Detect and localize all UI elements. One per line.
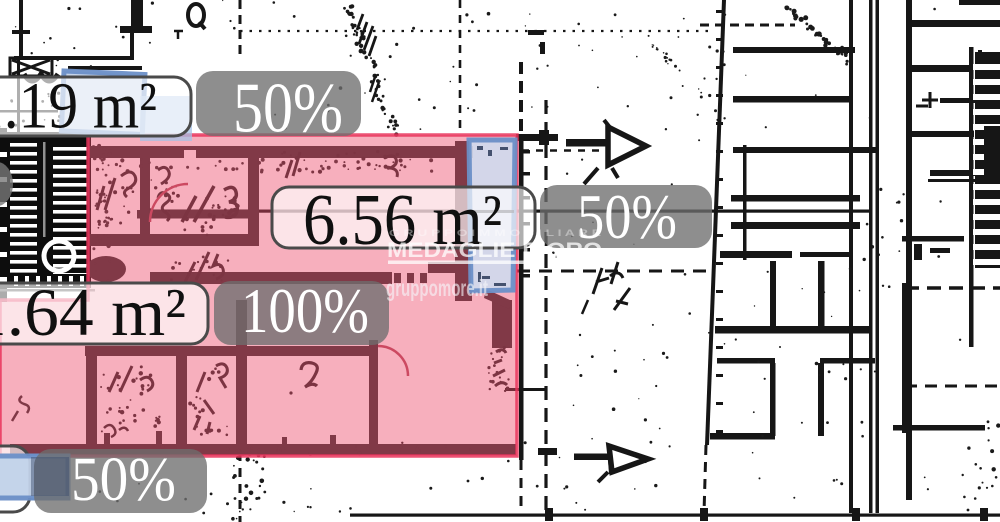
svg-text:100%: 100% bbox=[241, 276, 369, 346]
svg-text:G R U P P O I M M O B I L I A: G R U P P O I M M O B I L I A R E bbox=[389, 228, 601, 238]
svg-text:MEDAGLIE D’ORO: MEDAGLIE D’ORO bbox=[387, 238, 602, 262]
svg-text:gruppomore.it: gruppomore.it bbox=[386, 275, 488, 301]
svg-text:1.19 m²: 1.19 m² bbox=[0, 70, 157, 143]
svg-text:50%: 50% bbox=[233, 70, 343, 148]
svg-text:50%: 50% bbox=[71, 446, 176, 514]
svg-text:1.64 m²: 1.64 m² bbox=[0, 274, 186, 350]
